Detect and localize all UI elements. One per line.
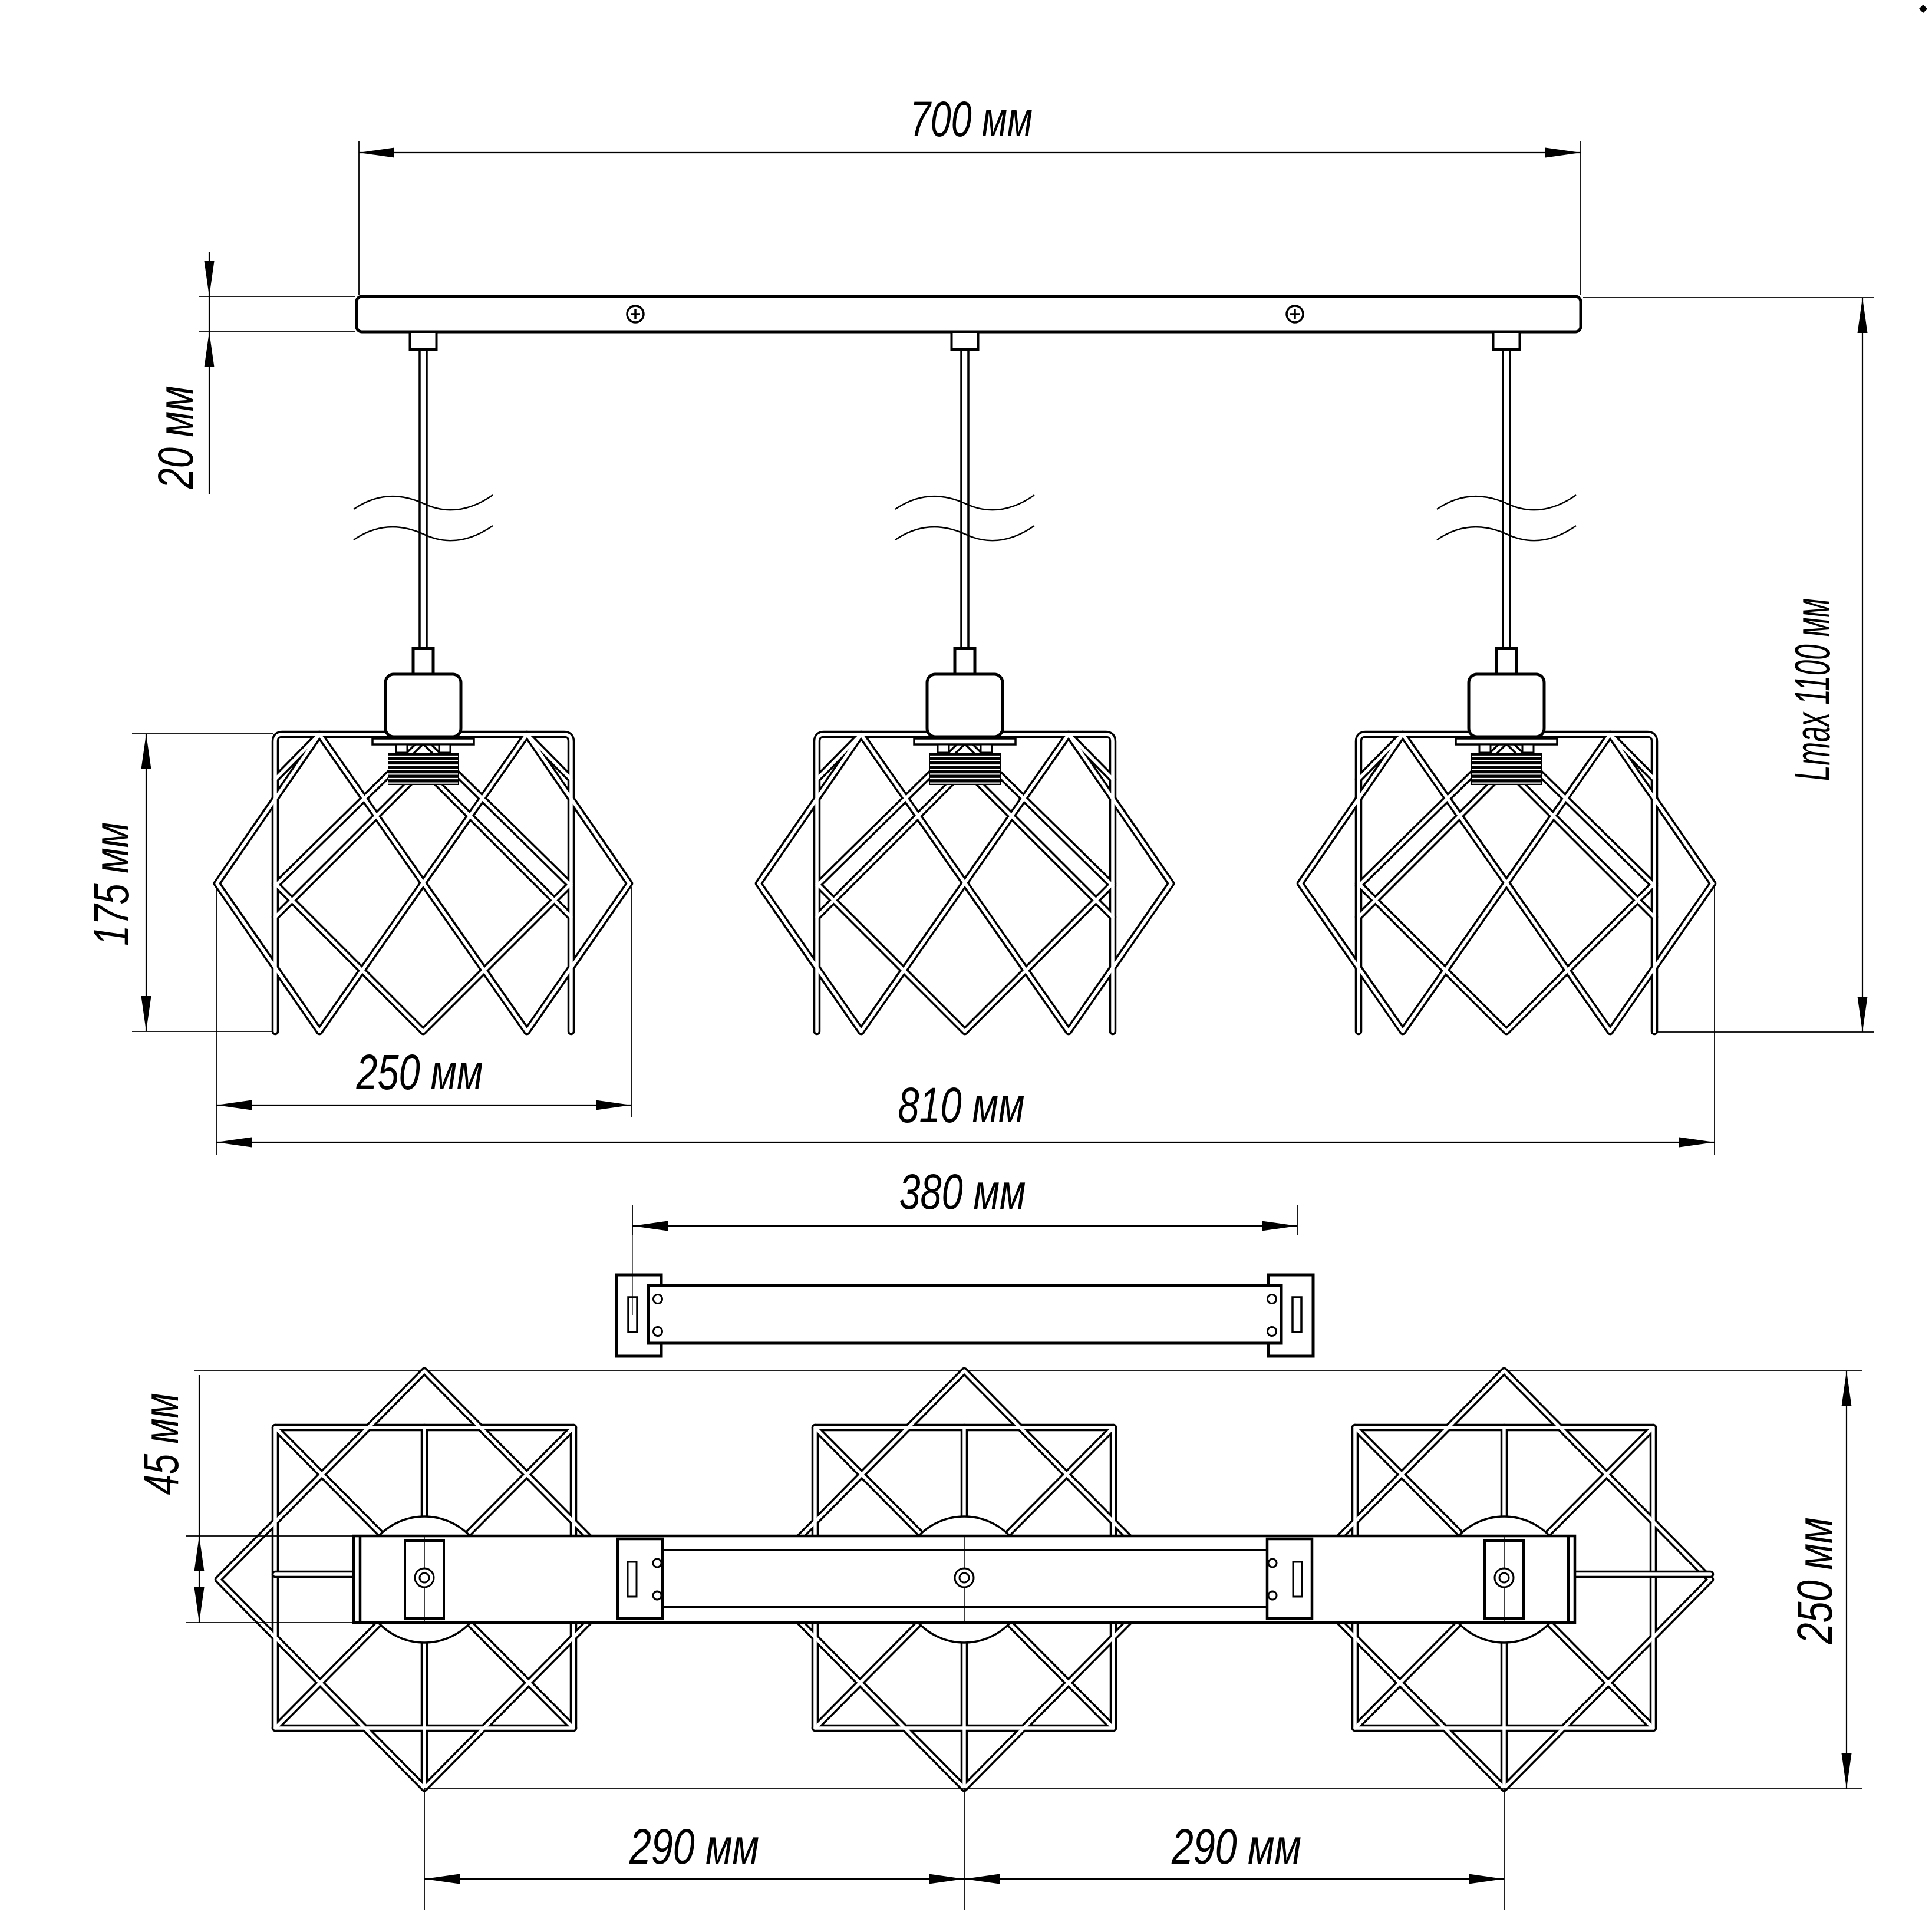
- svg-text:290 мм: 290 мм: [1171, 1819, 1301, 1874]
- svg-text:250 мм: 250 мм: [1787, 1518, 1842, 1645]
- svg-text:290 мм: 290 мм: [629, 1819, 759, 1874]
- svg-text:700 мм: 700 мм: [910, 91, 1033, 147]
- svg-text:45 мм: 45 мм: [133, 1393, 189, 1495]
- svg-text:380 мм: 380 мм: [899, 1164, 1026, 1219]
- svg-text:20 мм: 20 мм: [148, 386, 203, 490]
- svg-text:810 мм: 810 мм: [898, 1077, 1025, 1133]
- svg-text:250 мм: 250 мм: [356, 1044, 483, 1100]
- svg-text:Lmax 1100 мм: Lmax 1100 мм: [1785, 598, 1840, 781]
- svg-text:175 мм: 175 мм: [84, 822, 139, 946]
